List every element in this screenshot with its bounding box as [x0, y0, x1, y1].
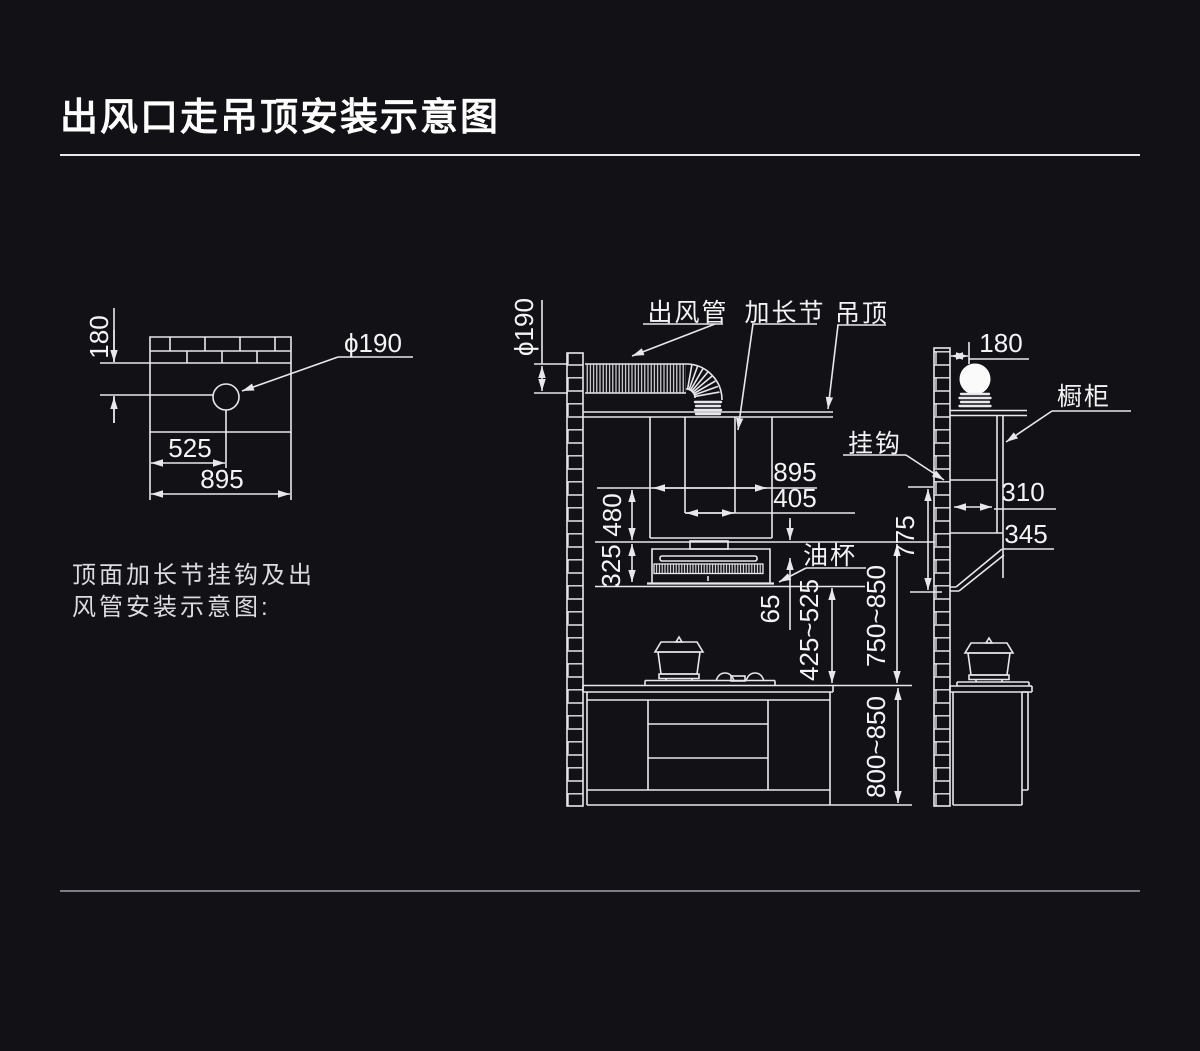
chimney-cover: [650, 417, 772, 549]
right-duct-stack: [960, 394, 991, 406]
right-base-cabinet: [953, 692, 1028, 805]
label-extension-section: 加长节: [744, 299, 825, 327]
right-dim-345: 345: [1004, 519, 1047, 549]
main-dim-425-525: 425~525: [794, 579, 824, 681]
main-dim-750-850: 750~850: [861, 565, 891, 667]
left-top-view-diagram: 180 525 895 ϕ190: [84, 308, 413, 500]
label-oil-cup: 油杯: [803, 542, 857, 570]
main-countertop: [583, 686, 912, 693]
main-dim-duct-diameter: ϕ190: [509, 298, 539, 356]
wall-cabinet: [950, 416, 1004, 592]
left-dim-180: 180: [84, 315, 114, 358]
duct-elbow: [686, 364, 722, 400]
label-outlet-duct: 出风管: [647, 299, 728, 327]
main-side-view-diagram: ϕ190 出风管 加长节 吊顶: [509, 298, 944, 806]
main-dim-325: 325: [596, 544, 626, 587]
left-dim-895: 895: [200, 464, 243, 494]
duct-cross-section-circle: [960, 364, 991, 395]
main-dim-65: 65: [755, 595, 785, 624]
duct-hole-circle: [213, 384, 239, 410]
main-dim-405: 405: [773, 483, 816, 513]
label-cabinet: 橱柜: [1057, 383, 1111, 411]
installation-diagram-page: 出风口走吊顶安装示意图 顶面加长节挂钩及出 风管安装示意图:: [0, 0, 1200, 1051]
right-wall-brick-column: [934, 348, 950, 806]
label-ceiling: 吊顶: [835, 300, 889, 328]
left-dim-hole-diameter: ϕ190: [344, 328, 402, 358]
right-stove: [957, 638, 1029, 686]
right-dim-310: 310: [1001, 477, 1044, 507]
main-dim-480: 480: [597, 493, 627, 536]
label-hook: 挂钩: [848, 430, 902, 458]
right-dim-180: 180: [979, 328, 1022, 358]
right-countertop: [950, 686, 1032, 692]
left-dim-525: 525: [168, 433, 211, 463]
outlet-duct-corrugated: [585, 364, 686, 393]
main-dim-775: 775: [890, 515, 920, 558]
technical-drawing: 180 525 895 ϕ190 ϕ190: [0, 0, 1200, 1051]
main-wall-brick-column: [567, 353, 583, 806]
hook-leader: [843, 455, 944, 480]
hood-body: [647, 549, 774, 584]
main-dim-800-850: 800~850: [861, 696, 891, 798]
main-stove: [645, 637, 775, 685]
right-side-view-diagram: 180 橱柜: [934, 328, 1131, 806]
right-shelf-lines: [950, 411, 1027, 416]
main-duct-diameter-dim: [534, 300, 568, 393]
